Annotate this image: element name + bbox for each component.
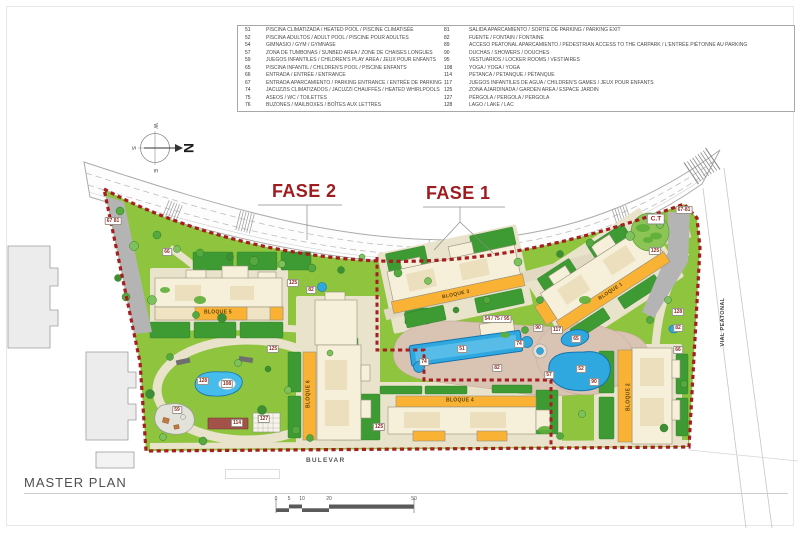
scale-tick: 20 [326,496,332,502]
legend-row: 95VESTUARIOS / LOCKER ROOMS / VESTIAIRES [444,57,791,65]
legend-row: 59JUEGOS INFANTILES / CHILDREN'S PLAY AR… [245,57,441,65]
map-ref-chip: 65 [571,335,581,343]
legend-item-text: ENTRADA / ENTRÉE / ENTRANCE [266,72,346,80]
fountain [318,283,327,292]
street-label-bulevar: BULEVAR [306,457,345,464]
legend-row: 75ASEOS / WC / TOILETTES [245,95,441,103]
legend-row: 81SALIDA APARCAMIENTO / SORTIE DE PARKIN… [444,27,791,35]
scale-tick: 0 [275,496,278,502]
legend-item-text: ZONA DE TUMBONAS / SUNBED AREA / ZONE DE… [266,50,433,58]
pedestrian-corridor [689,168,798,528]
scale-tick: 10 [299,496,305,502]
map-ref-chip: 127 [258,415,270,423]
page-title: MASTER PLAN [24,475,127,490]
legend-item-number: 74 [245,87,266,95]
map-ref-chip: 125 [649,247,661,255]
legend-item-text: JUEGOS INFANTILES DE AGUA / CHILDREN'S G… [469,80,654,88]
map-ref-chip: C.T [647,214,665,225]
legend-row: 90DUCHAS / SHOWERS / DOUCHES [444,50,791,58]
title-rule [24,493,788,494]
legend-row: 108YOGA / YOGA / YOGA [444,65,791,73]
map-ref-chip: 90 [589,378,599,386]
legend-row: 52PISCINA ADULTOS / ADULT POOL / PISCINE… [245,35,441,43]
map-ref-chip: 57 [544,371,554,379]
legend-row: 82FUENTE / FONTAIN / FONTAINE [444,35,791,43]
street-label-vial-peatonal: VIAL PEATONAL [720,298,726,347]
map-ref-chip: 90 [533,324,543,332]
legend-table: 51PISCINA CLIMATIZADA / HEATED POOL / PI… [237,25,795,112]
legend-item-number: 128 [444,102,469,110]
legend-item-text: YOGA / YOGA / YOGA [469,65,520,73]
legend-item-number: 127 [444,95,469,103]
map-ref-chip: 128 [672,308,684,316]
legend-item-number: 75 [245,95,266,103]
legend-row: 66ENTRADA / ENTRÉE / ENTRANCE [245,72,441,80]
legend-column-right: 81SALIDA APARCAMIENTO / SORTIE DE PARKIN… [444,27,791,110]
legend-item-text: DUCHAS / SHOWERS / DOUCHES [469,50,549,58]
map-ref-chip: 125 [267,345,279,353]
map-ref-chip: 125 [373,423,385,431]
legend-item-text: PISCINA CLIMATIZADA / HEATED POOL / PISC… [266,27,414,35]
legend-item-text: GIMNASIO / GYM / GYMNASE [266,42,336,50]
legend-row: 76BUZONES / MAILBOXES / BOÎTES AUX LETTR… [245,102,441,110]
legend-item-number: 81 [444,27,469,35]
legend-item-number: 114 [444,72,469,80]
map-ref-chip: 66 [162,248,172,256]
building-label-bloque-5: BLOQUE 5 [204,311,232,316]
legend-item-number: 90 [444,50,469,58]
legend-item-number: 51 [245,27,266,35]
legend-row: 54GIMNASIO / GYM / GYMNASE [245,42,441,50]
legend-item-text: PÉRGOLA / PERGOLA / PERGOLA [469,95,549,103]
map-ref-chip: 128 [197,377,209,385]
map-ref-chip: 66 [673,346,683,354]
legend-item-number: 59 [245,57,266,65]
scale-tick: 50 [411,496,417,502]
legend-row: 117JUEGOS INFANTILES DE AGUA / CHILDREN'… [444,80,791,88]
legend-column-left: 51PISCINA CLIMATIZADA / HEATED POOL / PI… [245,27,441,110]
legend-item-number: 76 [245,102,266,110]
compass: N W S E [130,123,197,173]
legend-item-text: ACCESO PEATONAL APARCAMIENTO / PEDESTRIA… [469,42,747,50]
legend-item-number: 89 [444,42,469,50]
legend-row: 67ENTRADA APARCAMIENTO / PARKING ENTRANC… [245,80,441,88]
legend-item-number: 65 [245,65,266,73]
map-ref-chip: 117 [551,326,563,334]
map-ref-chip: 54 / 75 / 95 [482,315,511,323]
map-ref-chip: 51 [457,345,467,353]
legend-row: 125ZONA AJARDINADA / GARDEN AREA / ESPAC… [444,87,791,95]
legend-item-text: LAGO / LAKE / LAC [469,102,514,110]
title-block-box [225,469,280,479]
legend-item-number: 95 [444,57,469,65]
legend-item-text: JUEGOS INFANTILES / CHILDREN'S PLAY AREA… [266,57,436,65]
phase-1-label: FASE 1 [426,183,490,204]
legend-item-number: 66 [245,72,266,80]
legend-item-text: PISCINA INFANTIL / CHILDREN'S POOL / PIS… [266,65,407,73]
scale-bar [276,498,414,513]
map-ref-chip: 125 [287,279,299,287]
legend-item-text: PISCINA ADULTOS / ADULT POOL / PISCINE P… [266,35,409,43]
legend-item-number: 57 [245,50,266,58]
legend-item-number: 54 [245,42,266,50]
legend-row: 127PÉRGOLA / PERGOLA / PERGOLA [444,95,791,103]
legend-row: 57ZONA DE TUMBONAS / SUNBED AREA / ZONE … [245,50,441,58]
compass-e: E [152,169,158,173]
legend-item-number: 52 [245,35,266,43]
legend-row: 51PISCINA CLIMATIZADA / HEATED POOL / PI… [245,27,441,35]
map-ref-chip: 114 [231,419,243,427]
map-ref-chip: 82 [306,286,316,294]
legend-item-text: FUENTE / FONTAIN / FONTAINE [469,35,544,43]
legend-item-number: 67 [245,80,266,88]
legend-item-text: ZONA AJARDINADA / GARDEN AREA / ESPACE J… [469,87,599,95]
legend-item-text: SALIDA APARCAMIENTO / SORTIE DE PARKING … [469,27,621,35]
legend-row: 74JACUZZIS CLIMATIZADOS / JACUZZI CHAUFF… [245,87,441,95]
legend-item-text: JACUZZIS CLIMATIZADOS / JACUZZI CHAUFFÉS… [266,87,440,95]
legend-item-number: 117 [444,80,469,88]
map-ref-chip: 74 [514,340,524,348]
map-ref-chip: 59 [172,406,182,414]
scale-tick: 5 [288,496,291,502]
legend-item-number: 125 [444,87,469,95]
legend-item-number: 108 [444,65,469,73]
building-label-bloque-6: BLOQUE 6 [307,380,312,408]
compass-w: W [152,123,158,129]
legend-item-text: ASEOS / WC / TOILETTES [266,95,327,103]
building-label-bloque-2: BLOQUE 2 [627,383,632,411]
map-ref-chip: 82 [492,364,502,372]
legend-row: 89ACCESO PEATONAL APARCAMIENTO / PEDESTR… [444,42,791,50]
map-ref-chip: 82 [673,324,683,332]
map-ref-chip: 74 [419,358,429,366]
compass-s: S [130,146,136,150]
compass-n: N [181,143,197,153]
legend-item-text: VESTUARIOS / LOCKER ROOMS / VESTIAIRES [469,57,580,65]
map-ref-chip: 67 81 [105,217,122,225]
building-label-bloque-4: BLOQUE 4 [446,399,474,404]
legend-row: 65PISCINA INFANTIL / CHILDREN'S POOL / P… [245,65,441,73]
legend-row: 128LAGO / LAKE / LAC [444,102,791,110]
map-ref-chip: 108 [221,380,233,388]
legend-item-text: ENTRADA APARCAMIENTO / PARKING ENTRANCE … [266,80,442,88]
legend-item-number: 82 [444,35,469,43]
map-ref-chip: 52 [576,365,586,373]
legend-row: 114PETANCA / PETANQUE / PÉTANQUE [444,72,791,80]
map-ref-chip: 67-81 [676,206,693,214]
legend-item-text: BUZONES / MAILBOXES / BOÎTES AUX LETTRES [266,102,381,110]
phase-2-label: FASE 2 [272,181,336,202]
legend-item-text: PETANCA / PETANQUE / PÉTANQUE [469,72,555,80]
